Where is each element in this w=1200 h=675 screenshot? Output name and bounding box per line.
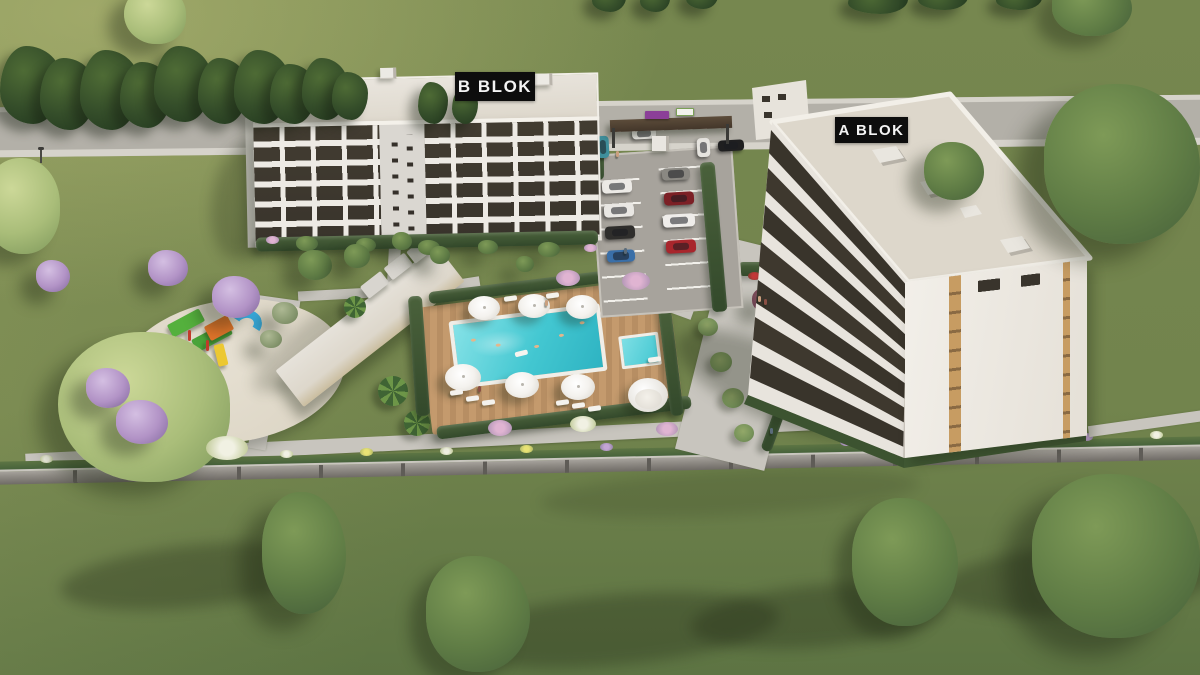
wood-accent-strip xyxy=(949,275,962,453)
gable-windows xyxy=(978,278,1000,441)
parking-stalls xyxy=(595,178,648,313)
a-blok-gable-face xyxy=(905,260,1087,458)
rooftop-unit xyxy=(534,73,552,85)
swimmer xyxy=(559,334,564,338)
flower-bush xyxy=(520,445,533,453)
white-flower-bush xyxy=(570,416,596,432)
car xyxy=(605,225,636,240)
guard-booth xyxy=(652,136,669,151)
label-b-blok: B BLOK xyxy=(455,72,535,101)
aerial-render-scene: B BLOK A BLOK xyxy=(0,0,1200,675)
shrub xyxy=(296,236,318,251)
swimmer xyxy=(496,343,501,347)
lilac-tree xyxy=(86,368,130,408)
lilac-tree xyxy=(36,260,70,292)
shell-cabana xyxy=(628,378,668,412)
car xyxy=(602,179,633,194)
deciduous-tree xyxy=(1052,0,1132,36)
person xyxy=(616,151,619,157)
rooftop-unit xyxy=(380,68,396,79)
stair-tower xyxy=(379,124,426,241)
sage-shrub xyxy=(260,330,282,348)
car xyxy=(607,249,636,262)
gate-sign-purple xyxy=(645,111,669,119)
sun-umbrella xyxy=(445,364,481,391)
label-a-blok: A BLOK xyxy=(835,117,908,143)
flower-bush xyxy=(1150,431,1163,439)
balcony-grid xyxy=(253,125,381,244)
willow-tree xyxy=(124,0,186,44)
person xyxy=(770,428,773,434)
sage-shrub xyxy=(272,302,298,324)
playground-post xyxy=(188,330,191,341)
conifer-tree xyxy=(686,0,718,9)
pink-flower-bush xyxy=(622,272,650,290)
shrub xyxy=(538,242,560,257)
person xyxy=(478,386,481,392)
conifer-tree xyxy=(918,0,968,10)
playground-post xyxy=(206,340,209,351)
gate-sign-logo xyxy=(676,108,694,116)
swimmer xyxy=(534,345,539,349)
lawn-tree xyxy=(852,498,958,626)
flower-bush xyxy=(584,244,597,252)
van xyxy=(697,138,711,158)
path xyxy=(1088,410,1200,437)
garden-tree xyxy=(298,250,332,280)
conifer-tree xyxy=(848,0,908,14)
b-blok-facade xyxy=(253,116,602,247)
sun-umbrella xyxy=(468,296,500,320)
sun-umbrella xyxy=(561,374,595,400)
flower-bush xyxy=(266,236,279,244)
conifer-tree xyxy=(640,0,670,12)
garden-tree xyxy=(430,246,450,264)
flower-bush xyxy=(360,448,373,456)
garden-tree xyxy=(392,232,412,250)
garden-tree xyxy=(344,244,370,268)
person xyxy=(758,296,761,302)
sun-umbrella xyxy=(505,372,539,398)
pink-flower-bush xyxy=(656,422,678,436)
large-deciduous-tree xyxy=(1044,84,1200,244)
conifer-tree xyxy=(996,0,1042,10)
palm-tree xyxy=(344,296,366,318)
gate-post xyxy=(726,124,729,144)
car xyxy=(664,191,695,206)
conifer-tree xyxy=(418,82,448,124)
pink-flower-bush xyxy=(556,270,580,286)
willow-tree xyxy=(0,158,60,254)
person xyxy=(624,248,627,254)
car xyxy=(666,239,697,254)
sun-umbrella xyxy=(566,295,598,319)
lawn-tree xyxy=(426,556,530,672)
palm-tree xyxy=(378,376,408,406)
garden-tree xyxy=(516,256,534,272)
pink-flower-bush xyxy=(488,420,512,436)
wood-accent-strip xyxy=(1063,262,1069,439)
lilac-tree xyxy=(212,276,260,318)
swimmer xyxy=(579,321,584,325)
large-lawn-tree xyxy=(1032,474,1200,638)
gate-post xyxy=(612,128,615,148)
lawn-tree xyxy=(262,492,346,614)
flower-bush xyxy=(440,447,453,455)
lilac-tree xyxy=(116,400,168,444)
kids-pool xyxy=(618,332,662,370)
white-flower-bush xyxy=(206,436,248,460)
flower-bush xyxy=(40,455,53,463)
car xyxy=(663,213,696,228)
gable-windows xyxy=(1021,273,1039,435)
balcony-grid xyxy=(424,120,599,240)
car xyxy=(662,167,691,180)
swimmer xyxy=(471,338,476,342)
car xyxy=(604,203,635,218)
flower-bush xyxy=(600,443,613,451)
sun-umbrella xyxy=(518,294,550,318)
street-lamp xyxy=(40,150,42,163)
shrub xyxy=(478,240,498,254)
pool-float xyxy=(514,349,528,357)
person xyxy=(764,299,767,305)
conifer-tree xyxy=(592,0,626,12)
person xyxy=(545,300,548,306)
flower-bush xyxy=(280,450,293,458)
lilac-tree xyxy=(148,250,188,286)
conifer-tree xyxy=(332,72,368,120)
deciduous-tree xyxy=(924,142,984,200)
